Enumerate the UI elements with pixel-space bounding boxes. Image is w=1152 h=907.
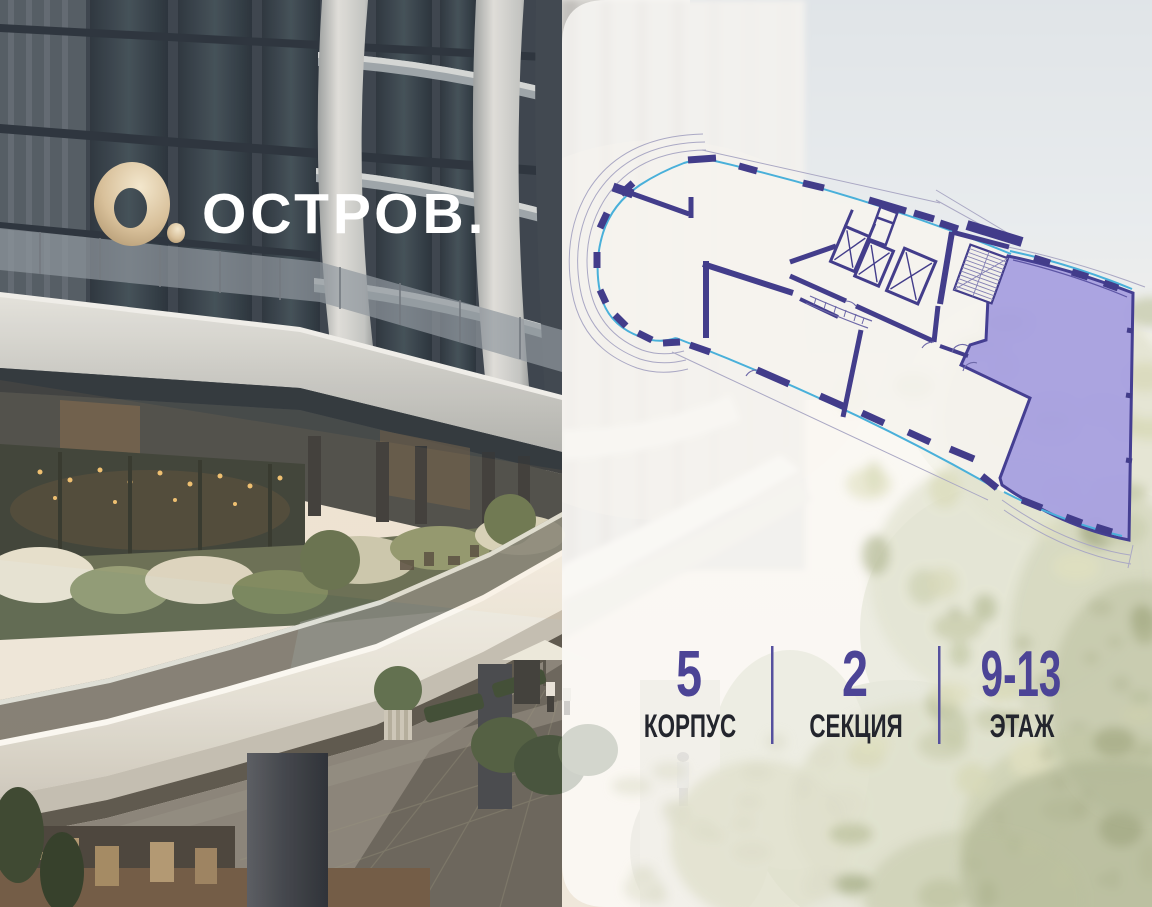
svg-text:5: 5 bbox=[676, 639, 702, 711]
svg-text:9-13: 9-13 bbox=[981, 638, 1062, 710]
svg-text:2: 2 bbox=[842, 639, 868, 711]
svg-text:ЭТАЖ: ЭТАЖ bbox=[990, 708, 1055, 744]
svg-text:ОСТРОВ.: ОСТРОВ. bbox=[202, 182, 488, 246]
svg-text:КОРПУС: КОРПУС bbox=[644, 708, 736, 744]
svg-text:СЕКЦИЯ: СЕКЦИЯ bbox=[809, 708, 902, 744]
